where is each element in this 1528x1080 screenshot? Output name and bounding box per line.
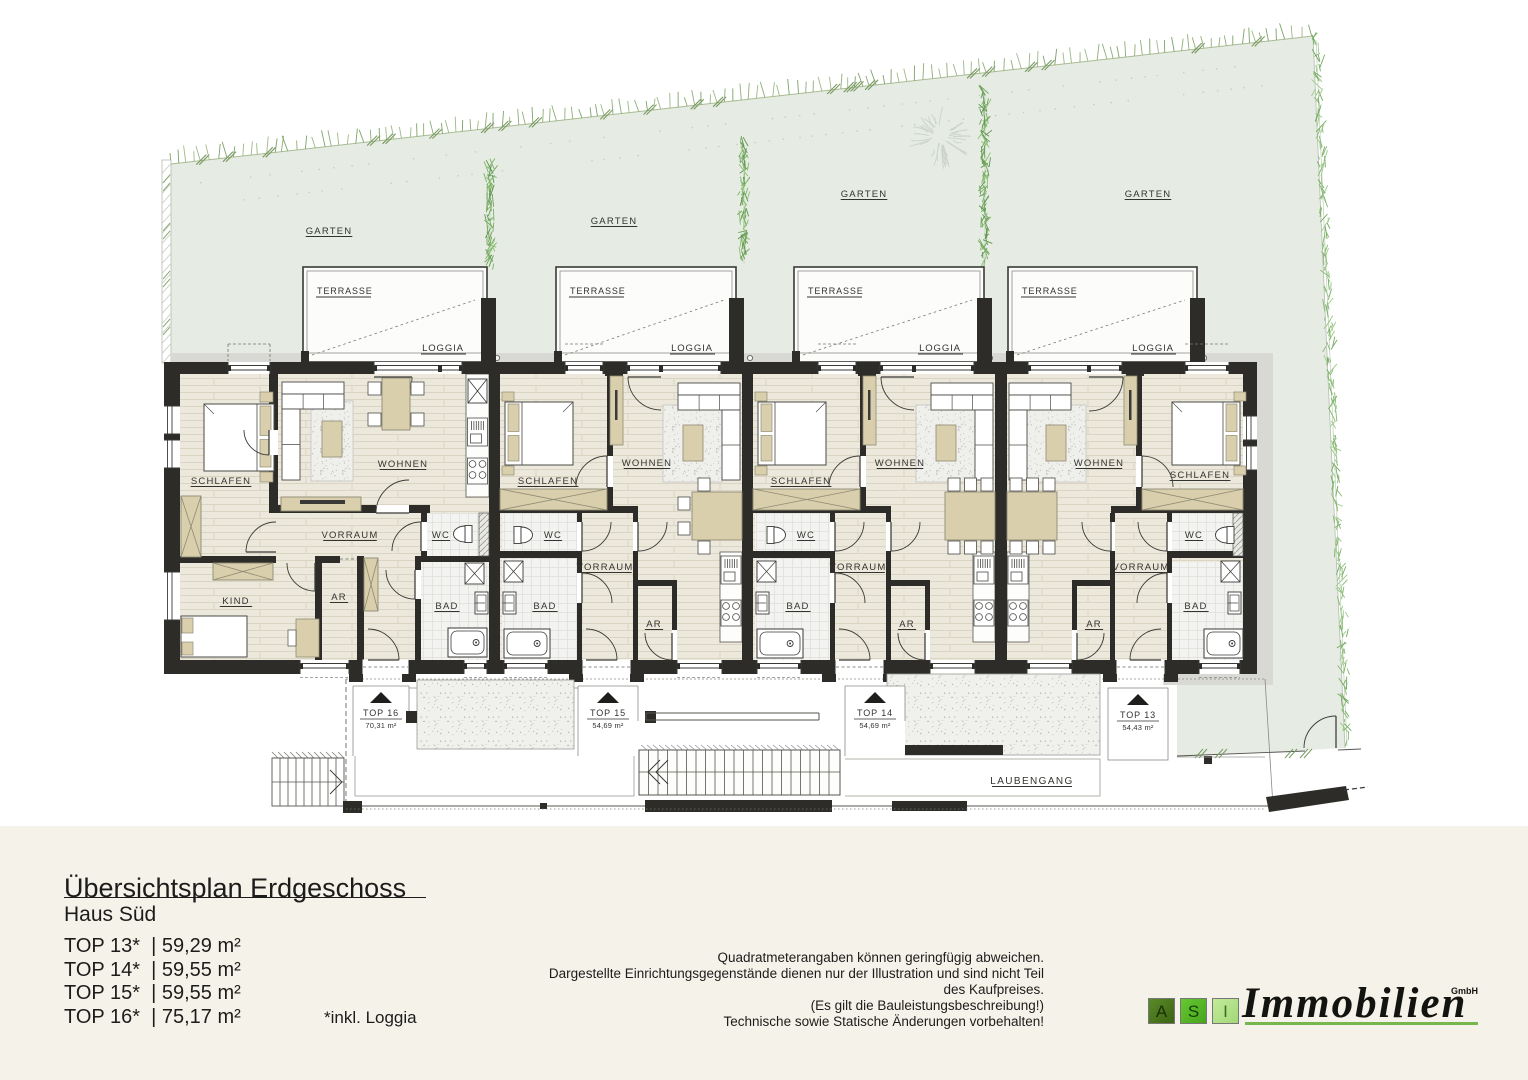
svg-text:TERRASSE: TERRASSE <box>1022 286 1078 296</box>
svg-text:LOGGIA: LOGGIA <box>919 343 961 354</box>
svg-text:KIND: KIND <box>222 596 250 607</box>
svg-text:LOGGIA: LOGGIA <box>671 343 713 354</box>
svg-text:SCHLAFEN: SCHLAFEN <box>1170 470 1230 481</box>
svg-text:VORRAUM: VORRAUM <box>830 562 887 573</box>
svg-text:SCHLAFEN: SCHLAFEN <box>771 476 831 487</box>
svg-text:AR: AR <box>331 592 347 603</box>
svg-text:SCHLAFEN: SCHLAFEN <box>518 476 578 487</box>
svg-text:WOHNEN: WOHNEN <box>1074 458 1124 469</box>
svg-text:70,31 m²: 70,31 m² <box>365 721 396 730</box>
svg-text:TOP 14: TOP 14 <box>857 708 893 718</box>
svg-text:GARTEN: GARTEN <box>306 226 353 237</box>
svg-text:GARTEN: GARTEN <box>591 216 638 227</box>
svg-text:TERRASSE: TERRASSE <box>570 286 626 296</box>
svg-text:VORRAUM: VORRAUM <box>322 530 379 541</box>
svg-text:WC: WC <box>432 530 450 541</box>
svg-text:AR: AR <box>899 619 915 630</box>
svg-text:LOGGIA: LOGGIA <box>1132 343 1174 354</box>
svg-text:GARTEN: GARTEN <box>1125 189 1172 200</box>
svg-text:TOP 15: TOP 15 <box>590 708 626 718</box>
svg-text:VORRAUM: VORRAUM <box>577 562 634 573</box>
svg-text:BAD: BAD <box>435 601 458 612</box>
svg-text:SCHLAFEN: SCHLAFEN <box>191 476 251 487</box>
svg-text:AR: AR <box>1086 619 1102 630</box>
svg-text:VORRAUM: VORRAUM <box>1113 562 1170 573</box>
svg-text:LOGGIA: LOGGIA <box>422 343 464 354</box>
svg-text:WC: WC <box>797 530 815 541</box>
svg-text:WOHNEN: WOHNEN <box>875 458 925 469</box>
svg-text:BAD: BAD <box>786 601 809 612</box>
svg-text:TOP 13: TOP 13 <box>1120 710 1156 720</box>
svg-text:LAUBENGANG: LAUBENGANG <box>990 776 1073 787</box>
svg-text:WOHNEN: WOHNEN <box>378 459 428 470</box>
svg-text:WC: WC <box>544 530 562 541</box>
svg-text:54,69 m²: 54,69 m² <box>859 721 890 730</box>
svg-text:WC: WC <box>1185 530 1203 541</box>
svg-text:GARTEN: GARTEN <box>841 189 888 200</box>
svg-text:BAD: BAD <box>533 601 556 612</box>
svg-text:TOP 16: TOP 16 <box>363 708 399 718</box>
svg-text:TERRASSE: TERRASSE <box>317 286 373 296</box>
svg-text:TERRASSE: TERRASSE <box>808 286 864 296</box>
svg-text:BAD: BAD <box>1184 601 1207 612</box>
svg-text:54,69 m²: 54,69 m² <box>592 721 623 730</box>
svg-text:54,43 m²: 54,43 m² <box>1122 723 1153 732</box>
svg-text:WOHNEN: WOHNEN <box>622 458 672 469</box>
svg-text:AR: AR <box>646 619 662 630</box>
